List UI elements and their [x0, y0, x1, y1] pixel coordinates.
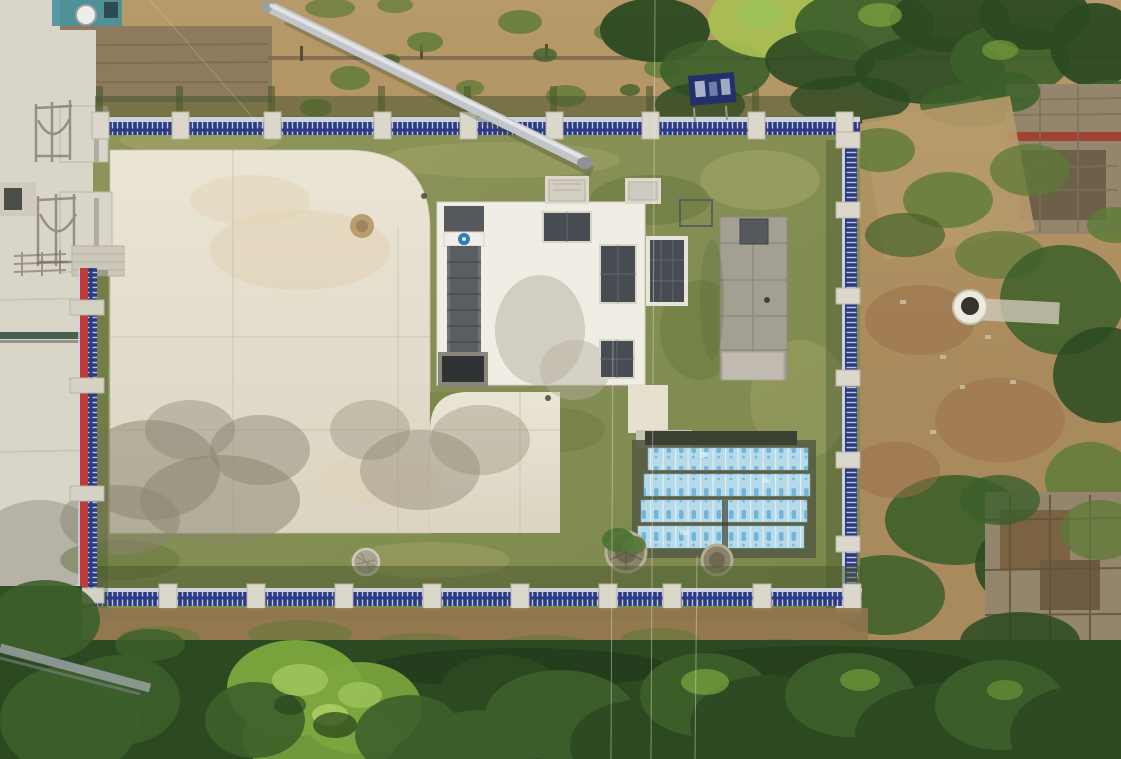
- fence-shadow: [96, 270, 108, 614]
- upper-paving: [0, 0, 60, 30]
- fence-pickets: [80, 592, 862, 606]
- rooftop-unit: [740, 219, 768, 244]
- roof-vent: [764, 297, 770, 303]
- film-covered-row: [648, 448, 808, 470]
- array-edge-shadow: [645, 431, 797, 445]
- channel-pit: [442, 356, 484, 382]
- fence-posts-east: [836, 132, 860, 612]
- walkway: [628, 385, 668, 433]
- solar-panel: [646, 236, 688, 306]
- small-fixture: [421, 193, 427, 199]
- aerial-photo-scene: [0, 0, 1121, 759]
- loading-platform: [722, 352, 784, 380]
- ladder-shadow: [14, 250, 68, 276]
- array-center-gap: [722, 500, 728, 548]
- ruin-red-band: [1008, 132, 1121, 141]
- perimeter-fence-south: [76, 566, 862, 610]
- aerial-photo-canvas: [0, 0, 1121, 759]
- fence-pickets: [88, 268, 97, 614]
- round-tank: [76, 5, 96, 25]
- fence-shadow: [80, 566, 862, 588]
- tank-hatch: [104, 2, 118, 18]
- small-fixture: [545, 395, 551, 401]
- perimeter-fence-east: [826, 132, 860, 612]
- equipment-box: [4, 188, 22, 210]
- membrane-tank-array: [632, 431, 816, 558]
- film-covered-row: [644, 474, 810, 496]
- fence-red-band: [80, 268, 88, 614]
- secondary-building: [700, 217, 787, 380]
